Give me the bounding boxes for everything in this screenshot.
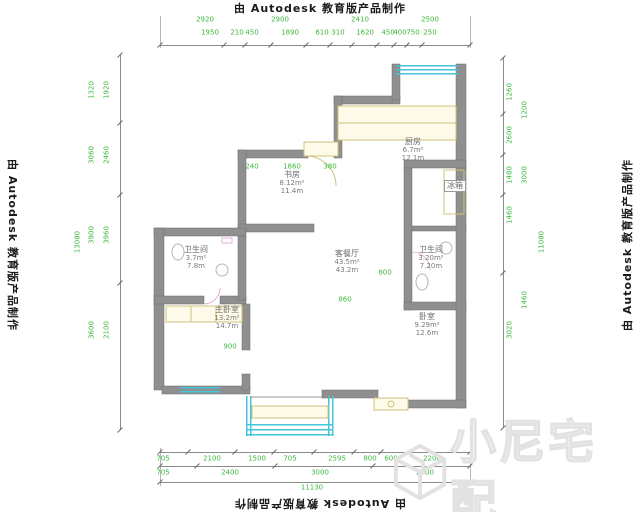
wall	[154, 228, 164, 390]
dimension-line-bottom2	[160, 466, 470, 467]
room-measure: 9.29m²	[414, 321, 439, 329]
dimension-label: 310	[331, 30, 344, 37]
balcony-sill	[252, 406, 328, 418]
room-name: 卫生间	[418, 246, 443, 254]
entry-door-arc	[306, 156, 336, 186]
dimension-line-top	[160, 45, 470, 46]
dimension-label: 705	[156, 456, 169, 463]
floorplan-canvas: 由 Autodesk 教育版产品制作 由 Autodesk 教育版产品制作 由 …	[0, 0, 640, 512]
window-line	[396, 73, 458, 75]
dimension-label: 610	[315, 30, 328, 37]
wall	[322, 390, 378, 398]
dimension-label: 250	[423, 30, 436, 37]
dimension-label: 1500	[248, 456, 266, 463]
room-measure: 3.7m²	[184, 254, 208, 262]
room-name: 主卧室	[214, 306, 239, 314]
dimension-label: 1920	[104, 81, 111, 99]
dimension-label: 1260	[507, 83, 514, 101]
room-name: 卫生间	[184, 246, 208, 254]
dimension-label: 2500	[421, 17, 439, 24]
dimension-label: 750	[406, 30, 419, 37]
dimension-label: 2460	[104, 146, 111, 164]
entry-door	[304, 142, 338, 156]
room-measure: 43.5m²	[334, 258, 359, 266]
room-label: 主卧室13.2m²14.7m	[214, 306, 239, 330]
wall	[334, 96, 400, 104]
wall	[154, 296, 204, 304]
dimension-label: 3960	[104, 226, 111, 244]
room-label: 书房8.12m²11.4m	[279, 171, 304, 195]
dimension-line-bottom1	[160, 452, 470, 453]
balcony-window-line	[246, 429, 332, 431]
room-name: 客餐厅	[334, 250, 359, 258]
dimension-label: 1620	[356, 30, 374, 37]
dimension-label: 2100	[203, 456, 221, 463]
room-measure: 3.20m²	[418, 254, 443, 262]
dimension-label: 1460	[522, 291, 529, 309]
room-measure: 7.8m	[184, 262, 208, 270]
balcony-window-line	[332, 396, 334, 436]
balcony-window-line	[246, 434, 332, 436]
window-line	[396, 65, 458, 67]
room-label: 厨房6.7m²12.1m	[402, 138, 424, 162]
dimension-label: 1460	[507, 206, 514, 224]
dimension-label: 1950	[201, 30, 219, 37]
room-measure: 7.20m	[418, 262, 443, 270]
wall	[242, 374, 250, 390]
dimension-label: 2595	[328, 456, 346, 463]
room-label: 卧室9.29m²12.6m	[414, 313, 439, 337]
dimension-label: 1200	[522, 101, 529, 119]
wall	[456, 64, 466, 170]
dimension-label: 2900	[271, 17, 289, 24]
dimension-label: 3900	[89, 226, 96, 244]
dimension-label: 380	[323, 164, 336, 171]
room-measure: 43.2m	[334, 266, 359, 274]
room-label: 卫生间3.20m²7.20m	[418, 246, 443, 270]
room-measure: 14.7m	[214, 322, 239, 330]
dimension-label: 3000	[522, 166, 529, 184]
dimension-label: 240	[245, 164, 258, 171]
wall	[154, 228, 246, 236]
room-name: 冰箱	[447, 182, 463, 190]
room-label: 冰箱	[444, 180, 466, 192]
dimension-label: 1480	[507, 166, 514, 184]
dimension-label: 800	[363, 456, 376, 463]
window-line	[180, 387, 220, 389]
window-line	[396, 69, 458, 71]
sink	[216, 264, 228, 276]
balcony-window-line	[246, 396, 248, 436]
dimension-label: 1890	[281, 30, 299, 37]
pink-fixture	[222, 238, 232, 243]
wall	[404, 168, 412, 310]
dimension-label: 3020	[507, 321, 514, 339]
dimension-label: 705	[283, 456, 296, 463]
room-name: 书房	[279, 171, 304, 179]
room-label: 卫生间3.7m²7.8m	[184, 246, 208, 270]
dimension-label: 3000	[311, 470, 329, 477]
dimension-label: 800	[378, 270, 391, 277]
room-measure: 11.4m	[279, 187, 304, 195]
dimension-label: 2600	[416, 470, 434, 477]
wall	[242, 304, 250, 350]
balcony-door	[374, 398, 408, 410]
dimension-label: 3600	[89, 321, 96, 339]
dimension-total-left: 13080	[75, 231, 82, 253]
dimension-label: 210	[230, 30, 243, 37]
window-line	[180, 391, 220, 393]
dimension-label: 1320	[89, 81, 96, 99]
room-measure: 8.12m²	[279, 179, 304, 187]
room-name: 厨房	[402, 138, 424, 146]
toilet	[416, 274, 428, 290]
bath-door-arc	[204, 288, 220, 304]
dimension-label: 900	[223, 344, 236, 351]
dimension-label: 400	[393, 30, 406, 37]
dimension-label: 2410	[351, 17, 369, 24]
dimension-label: 2600	[507, 126, 514, 144]
dimension-line-left	[120, 55, 121, 430]
dimension-total-bottom: 11130	[301, 485, 323, 492]
wall	[238, 224, 314, 232]
dimension-label: 2100	[104, 321, 111, 339]
room-measure: 12.6m	[414, 329, 439, 337]
wall	[238, 236, 246, 300]
dimension-label: 3060	[89, 146, 96, 164]
dimension-label: 600	[384, 456, 397, 463]
room-name: 卧室	[414, 313, 439, 321]
room-label: 客餐厅43.5m²43.2m	[334, 250, 359, 274]
floor-plan-drawing	[0, 0, 640, 512]
dimension-label: 450	[245, 30, 258, 37]
room-measure: 13.2m²	[214, 314, 239, 322]
room-measure: 6.7m²	[402, 146, 424, 154]
dimension-label: 2400	[221, 470, 239, 477]
room-measure: 12.1m	[402, 154, 424, 162]
balcony-window-line	[246, 424, 332, 426]
dimension-label: 705	[156, 470, 169, 477]
toilet	[172, 244, 184, 260]
dimension-total-right: 11080	[539, 231, 546, 253]
dimension-label: 2920	[196, 17, 214, 24]
dimension-label: 860	[338, 297, 351, 304]
dimension-label: 2200	[423, 456, 441, 463]
balcony-window-line	[250, 396, 252, 436]
wall	[238, 150, 308, 158]
